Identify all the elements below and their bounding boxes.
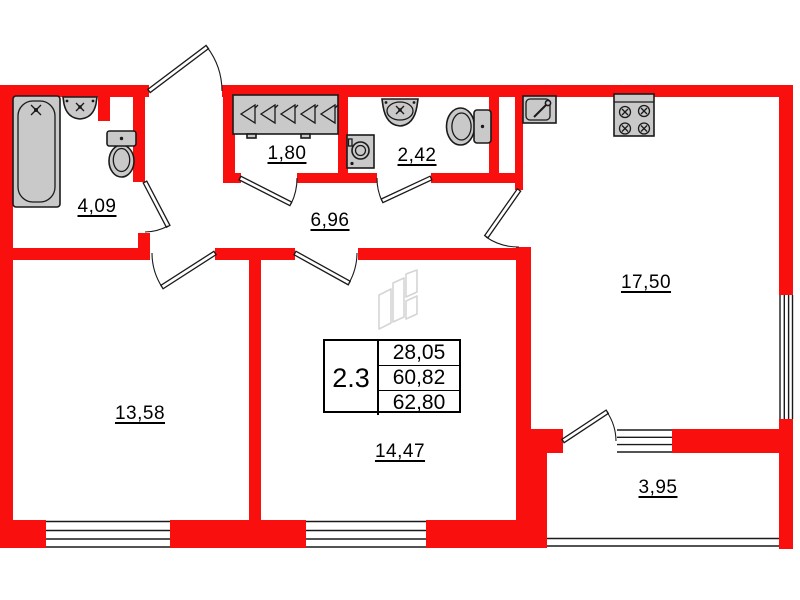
wall-segment	[672, 429, 779, 453]
wall-segment	[223, 173, 241, 183]
door-swing-balcony	[562, 410, 616, 443]
wall-segment	[426, 520, 547, 548]
room-area-label-living-room: 14,47	[375, 441, 425, 463]
wall-segment	[0, 520, 46, 548]
apartment-info-table: 2.3 28,05 60,82 62,80	[323, 339, 461, 413]
room-area-label-balcony: 3,95	[639, 477, 678, 499]
balcony-glazing	[547, 539, 779, 547]
room-area-label-dressing-room: 1,80	[268, 143, 307, 165]
wall-segment	[0, 85, 13, 548]
room-area-label-bathroom: 4,09	[78, 196, 117, 218]
wall-segment	[170, 520, 306, 548]
toilet-icon	[107, 131, 136, 177]
wall-segment	[779, 85, 793, 295]
wall-segment	[779, 419, 793, 549]
unit-number: 2.3	[325, 341, 379, 415]
area-value-living: 28,05	[379, 341, 459, 366]
toilet-side-icon	[447, 108, 492, 145]
wall-segment	[515, 97, 523, 190]
area-value-total: 62,80	[379, 391, 459, 415]
door-swing-kitchen	[485, 189, 521, 247]
floor-plan-drawing	[0, 0, 800, 600]
wall-sink-icon	[63, 97, 97, 119]
area-value-floor: 60,82	[379, 366, 459, 391]
washing-machine-icon	[347, 135, 374, 168]
room-area-label-kitchen: 17,50	[621, 272, 671, 294]
door-swing-entrance	[148, 45, 222, 92]
window-bedroom	[46, 522, 170, 548]
bathtub-icon	[13, 96, 60, 207]
wall-segment	[348, 173, 377, 183]
wall-segment	[297, 173, 348, 183]
wall-segment	[516, 429, 563, 453]
hanger-rail-icon	[233, 95, 338, 138]
door-swing-dressing-room	[239, 176, 297, 205]
door-swing-bedroom	[152, 251, 216, 288]
developer-watermark-icon	[379, 270, 417, 329]
wall-segment	[516, 247, 531, 429]
wall-segment	[0, 248, 150, 260]
stove-icon	[614, 94, 654, 136]
window-kitchen	[780, 295, 793, 419]
room-area-label-hallway: 6,96	[311, 210, 350, 232]
floor-plan-canvas: 4,09 1,80 2,42 6,96 13,58 14,47 17,50 3,…	[0, 0, 800, 600]
wall-segment	[98, 97, 110, 121]
room-area-label-bedroom: 13,58	[115, 403, 165, 425]
window-living-room	[306, 522, 426, 548]
wall-segment	[516, 453, 547, 520]
kitchen-sink-icon	[523, 96, 556, 123]
vanity-sink-icon	[382, 99, 418, 126]
wall-segment	[358, 248, 517, 260]
wall-segment	[249, 258, 261, 520]
window-balcony-wall	[617, 430, 672, 452]
wall-segment	[431, 173, 523, 183]
door-swing-living-room	[294, 251, 357, 285]
door-swing-bathroom	[143, 181, 170, 232]
room-area-label-water-closet: 2,42	[398, 145, 437, 167]
door-swing-water-closet	[377, 176, 432, 202]
